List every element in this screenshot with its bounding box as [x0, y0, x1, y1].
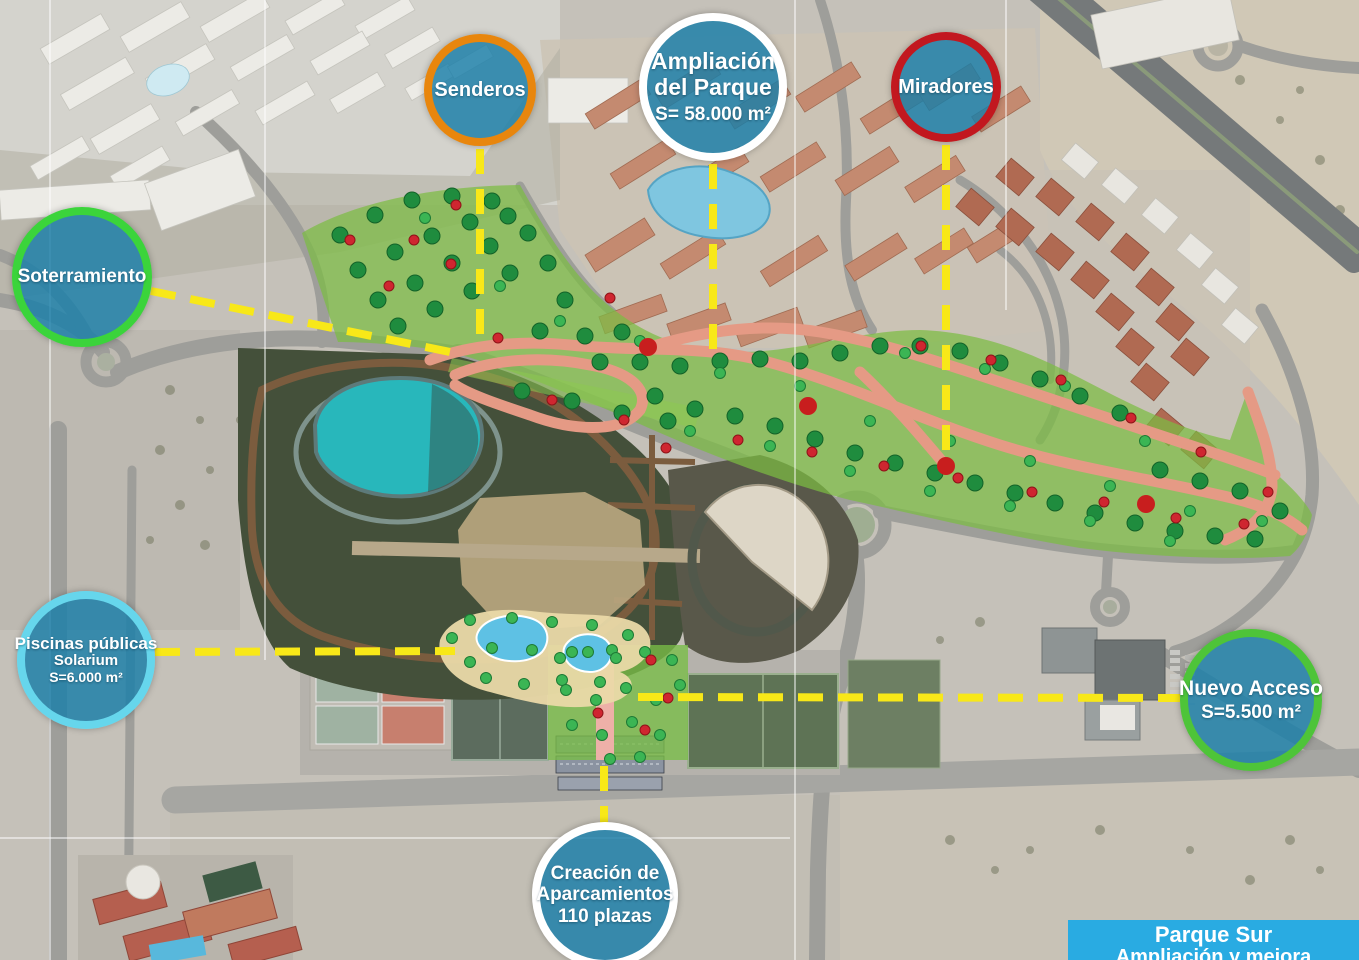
bubble-aparcamientos: Creación de Aparcamientos 110 plazas [532, 822, 678, 960]
bubble-soterramiento: Soterramiento [12, 207, 152, 347]
bubble-ampliacion-line2: del Parque [654, 75, 772, 101]
bubble-senderos-label: Senderos [434, 79, 525, 101]
bubble-aparcamientos-line1: Creación de [551, 863, 660, 884]
bubble-nuevo-acceso-line1: Nuevo Acceso [1179, 677, 1323, 701]
bubble-soterramiento-label: Soterramiento [18, 266, 147, 287]
water-park [78, 855, 302, 960]
project-title-line1: Parque Sur [1068, 923, 1359, 947]
bubble-ampliacion-area: S= 58.000 m² [655, 104, 771, 125]
bubble-piscinas-publicas: Piscinas públicas Solarium S=6.000 m² [17, 591, 155, 729]
bubble-nuevo-acceso: Nuevo Acceso S=5.500 m² [1180, 629, 1322, 771]
bubble-miradores-label: Miradores [898, 76, 994, 98]
bubble-piscinas-line1: Piscinas públicas [15, 634, 158, 653]
bubble-senderos: Senderos [424, 34, 536, 146]
bubble-ampliacion-del-parque: Ampliación del Parque S= 58.000 m² [639, 13, 787, 161]
aerial-plan-canvas: Senderos Ampliación del Parque S= 58.000… [0, 0, 1359, 960]
bubble-piscinas-area: S=6.000 m² [49, 670, 123, 686]
bubble-nuevo-acceso-area: S=5.500 m² [1201, 702, 1301, 723]
bubble-aparcamientos-line3: 110 plazas [558, 906, 652, 927]
bubble-piscinas-line2: Solarium [54, 653, 118, 670]
bubble-ampliacion-line1: Ampliación [651, 49, 775, 75]
bubble-aparcamientos-line2: Aparcamientos [536, 884, 673, 905]
project-title-box: Parque Sur Ampliación y mejora [1068, 920, 1359, 960]
bubble-miradores: Miradores [891, 32, 1001, 142]
project-title-line2: Ampliación y mejora [1068, 947, 1359, 960]
